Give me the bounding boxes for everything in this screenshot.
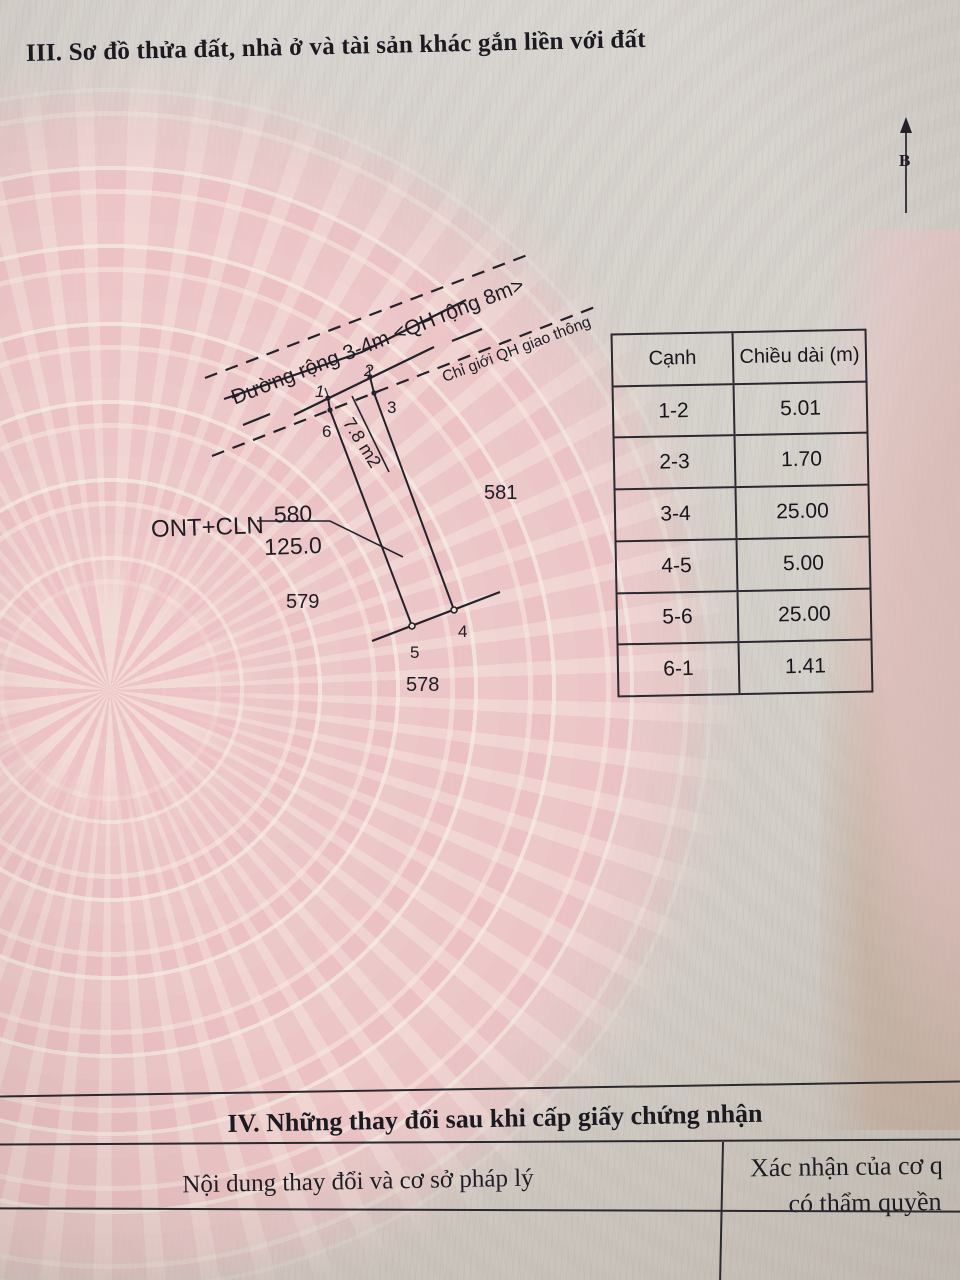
edge-table: Cạnh Chiều dài (m) 1-2 5.01 2-3 1.70 3-4… bbox=[611, 329, 874, 698]
section4-right-column-header-line1: Xác nhận của cơ q bbox=[750, 1151, 943, 1184]
vertex-label-3: 3 bbox=[387, 398, 396, 418]
parcel-area-label: 125.0 bbox=[251, 532, 336, 561]
length-cell: 1.41 bbox=[740, 641, 872, 693]
length-cell: 25.00 bbox=[737, 486, 869, 538]
edge-cell: 3-4 bbox=[616, 488, 738, 540]
neighbor-parcel-579: 579 bbox=[286, 591, 319, 614]
section4-right-column-header-line2: có thẩm quyền bbox=[770, 1187, 960, 1220]
edge-cell: 5-6 bbox=[618, 592, 740, 644]
vertex-label-2: 2 bbox=[364, 361, 373, 381]
edge-table-row: 6-1 1.41 bbox=[618, 639, 871, 696]
length-cell: 25.00 bbox=[739, 589, 871, 641]
edge-cell: 6-1 bbox=[619, 643, 741, 695]
edge-table-row: 4-5 5.00 bbox=[617, 535, 870, 592]
edge-cell: 1-2 bbox=[614, 385, 736, 437]
length-cell: 5.00 bbox=[738, 537, 870, 589]
length-cell: 5.01 bbox=[735, 382, 867, 434]
edge-cell: 2-3 bbox=[615, 437, 737, 489]
length-cell: 1.70 bbox=[736, 434, 868, 486]
land-use-code-label: ONT+CLN bbox=[151, 512, 265, 544]
vertex-label-5: 5 bbox=[410, 643, 419, 663]
parcel-number-label: 580 bbox=[255, 500, 332, 529]
edge-table-row: 1-2 5.01 bbox=[614, 380, 867, 437]
edge-table-row: 3-4 25.00 bbox=[616, 484, 869, 541]
vertex-label-4: 4 bbox=[458, 622, 467, 642]
edge-table-row: 5-6 25.00 bbox=[617, 587, 870, 644]
edge-table-header-row: Cạnh Chiều dài (m) bbox=[613, 331, 866, 386]
vertex-label-6: 6 bbox=[322, 422, 331, 442]
edge-table-row: 2-3 1.70 bbox=[615, 432, 868, 489]
edge-table-header-edge: Cạnh bbox=[613, 333, 735, 385]
edge-table-header-length: Chiều dài (m) bbox=[734, 331, 866, 383]
neighbor-parcel-578: 578 bbox=[406, 674, 439, 697]
edge-cell: 4-5 bbox=[617, 540, 739, 592]
north-arrow-label: B bbox=[899, 151, 910, 171]
vertex-label-1: 1 bbox=[315, 382, 324, 402]
neighbor-parcel-581: 581 bbox=[484, 482, 517, 505]
certificate-page: III. Sơ đồ thửa đất, nhà ở và tài sản kh… bbox=[0, 0, 960, 1280]
